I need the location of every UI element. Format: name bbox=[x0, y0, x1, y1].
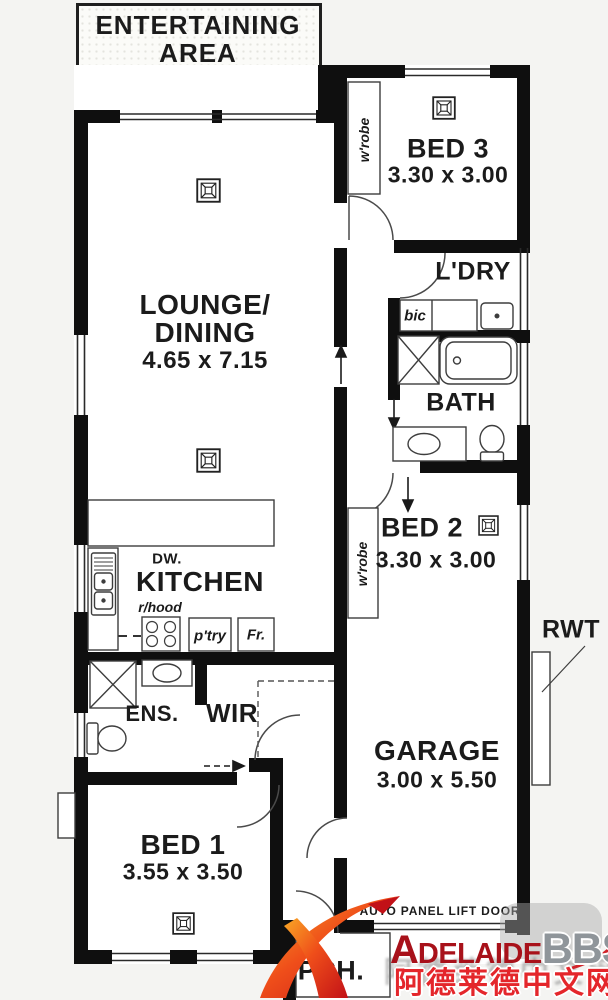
ceiling-fan-icon bbox=[173, 913, 194, 934]
rangehood-label: r/hood bbox=[138, 600, 182, 614]
watermark-chinese-text: 阿德莱德中文网 bbox=[394, 958, 608, 1000]
bath-shower bbox=[398, 336, 439, 384]
bath-label: BATH bbox=[426, 391, 496, 416]
porch-label: PCH. bbox=[298, 958, 365, 985]
bed3-wardrobe-label: w'robe bbox=[357, 118, 371, 163]
lounge-dining-label-2: DINING bbox=[155, 319, 256, 347]
garage-dimensions: 3.00 x 5.50 bbox=[377, 769, 498, 792]
laundry-cupboard-label: bic bbox=[404, 309, 426, 324]
ensuite-toilet bbox=[87, 723, 126, 754]
rwt-label: RWT bbox=[542, 618, 600, 643]
bed2-wardrobe-label: w'robe bbox=[355, 542, 369, 587]
bath-vanity-basin bbox=[393, 427, 466, 461]
ensuite-label: ENS. bbox=[125, 703, 178, 725]
bathtub bbox=[440, 337, 517, 384]
ceiling-fan-icon bbox=[197, 179, 220, 202]
bed1-dimensions: 3.55 x 3.50 bbox=[123, 861, 244, 884]
ceiling-fan-icon bbox=[197, 449, 220, 472]
bed3-dimensions: 3.30 x 3.00 bbox=[388, 164, 509, 187]
entertaining-area-label-2: AREA bbox=[159, 40, 237, 66]
cooktop bbox=[142, 617, 180, 651]
kitchen-island-bench bbox=[88, 500, 274, 546]
bed2-dimensions: 3.30 x 3.00 bbox=[376, 549, 497, 572]
fridge-label: Fr. bbox=[247, 628, 265, 643]
entertaining-area-label: ENTERTAINING bbox=[95, 12, 300, 38]
bed3-label: BED 3 bbox=[407, 136, 489, 163]
lounge-dining-dimensions: 4.65 x 7.15 bbox=[142, 349, 268, 373]
wir-label: WIR bbox=[206, 700, 258, 726]
garage-label: GARAGE bbox=[374, 737, 500, 765]
floor-plan-drawing bbox=[0, 0, 608, 1000]
ceiling-fan-icon bbox=[479, 516, 498, 535]
bed1-label: BED 1 bbox=[141, 831, 226, 859]
floor-plan-page: ENTERTAINING AREA BED 3 3.30 x 3.00 w'ro… bbox=[0, 0, 608, 1000]
exterior-pier bbox=[58, 793, 75, 838]
lounge-dining-label: LOUNGE/ bbox=[139, 291, 270, 319]
bath-toilet bbox=[480, 426, 504, 462]
dishwasher-label: DW. bbox=[152, 552, 182, 567]
rainwater-tank bbox=[532, 652, 550, 785]
kitchen-label: KITCHEN bbox=[136, 568, 264, 596]
auto-panel-lift-door-label: AUTO PANEL LIFT DOOR bbox=[360, 905, 521, 917]
laundry-label: L'DRY bbox=[435, 260, 511, 285]
kitchen-sink bbox=[92, 553, 116, 615]
bed2-label: BED 2 bbox=[381, 515, 463, 542]
ceiling-fan-icon bbox=[433, 97, 455, 119]
pantry-label: p'try bbox=[194, 629, 226, 644]
ensuite-vanity-basin bbox=[142, 660, 192, 686]
